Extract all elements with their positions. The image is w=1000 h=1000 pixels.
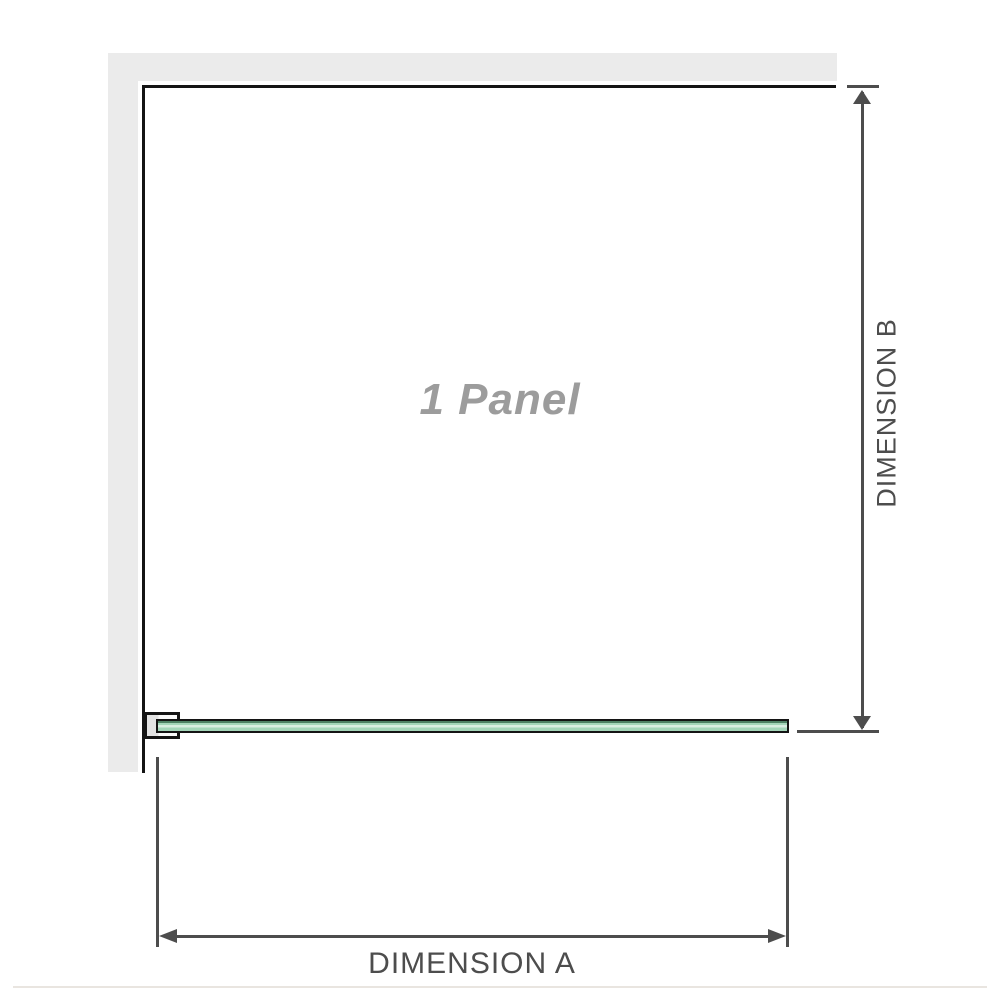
dimension-a-left-extension-line (156, 757, 159, 947)
opening-left-edge-line (142, 85, 145, 773)
arrow-left-icon (159, 929, 177, 943)
arrow-down-icon (853, 716, 871, 730)
shower-panel-dimension-diagram: DIMENSION B DIMENSION A 1 Panel (0, 0, 1000, 1000)
dimension-b-top-tick (847, 85, 879, 88)
arrow-right-icon (768, 929, 786, 943)
dimension-a-line (176, 935, 770, 938)
arrow-up-icon (853, 90, 871, 104)
dimension-b-bottom-tick (797, 730, 879, 733)
bottom-baseline (13, 986, 987, 988)
glass-panel-bar (156, 719, 789, 733)
dimension-b-label: DIMENSION B (872, 318, 903, 508)
wall-top-band (108, 53, 837, 81)
dimension-b-line (861, 92, 864, 728)
dimension-a-right-extension-line (786, 757, 789, 947)
opening-top-edge-line (142, 85, 836, 88)
wall-left-band (108, 53, 138, 772)
panel-count-label: 1 Panel (419, 375, 580, 425)
dimension-a-label: DIMENSION A (368, 947, 576, 981)
